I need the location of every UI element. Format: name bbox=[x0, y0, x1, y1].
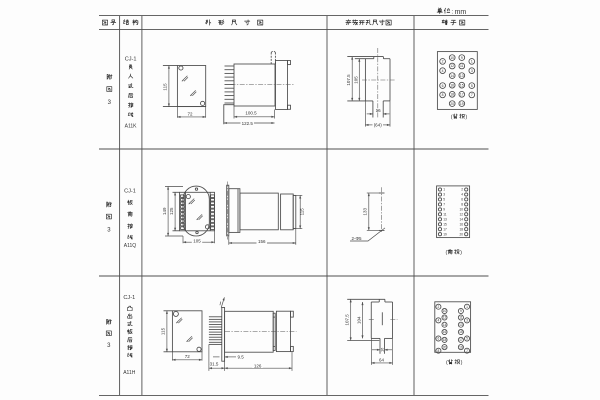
svg-text:2: 2 bbox=[461, 188, 463, 192]
svg-text:18: 18 bbox=[443, 338, 447, 342]
svg-text:15: 15 bbox=[460, 83, 464, 87]
svg-text:133: 133 bbox=[363, 207, 368, 215]
svg-text:11: 11 bbox=[459, 316, 463, 320]
svg-text:20: 20 bbox=[443, 345, 447, 349]
svg-text:12: 12 bbox=[443, 316, 447, 320]
svg-text:3: 3 bbox=[471, 69, 473, 73]
svg-text:100.5: 100.5 bbox=[245, 111, 257, 116]
svg-text:2-Φ5: 2-Φ5 bbox=[351, 236, 362, 241]
svg-text:7: 7 bbox=[471, 93, 473, 97]
svg-text:A11K: A11K bbox=[125, 123, 138, 129]
svg-text:19: 19 bbox=[460, 102, 464, 106]
svg-text:17: 17 bbox=[459, 338, 463, 342]
svg-text:A11Q: A11Q bbox=[124, 243, 137, 249]
svg-text:16: 16 bbox=[379, 347, 384, 352]
svg-text:18: 18 bbox=[450, 93, 454, 97]
svg-text:19: 19 bbox=[459, 345, 463, 349]
svg-text:(: ( bbox=[446, 250, 448, 256]
svg-text:16: 16 bbox=[443, 330, 447, 334]
svg-text:9.5: 9.5 bbox=[237, 355, 244, 360]
svg-text:CJ-1: CJ-1 bbox=[125, 57, 137, 63]
svg-text:115: 115 bbox=[300, 208, 305, 216]
svg-text:1: 1 bbox=[443, 188, 445, 192]
svg-text:4: 4 bbox=[442, 69, 444, 73]
svg-text:10: 10 bbox=[443, 309, 447, 313]
svg-text:9: 9 bbox=[460, 309, 462, 313]
svg-text:6: 6 bbox=[438, 337, 440, 341]
svg-text:18: 18 bbox=[459, 227, 463, 231]
svg-text:4: 4 bbox=[461, 193, 463, 197]
svg-text:72: 72 bbox=[187, 111, 193, 116]
svg-text:105: 105 bbox=[193, 238, 201, 243]
svg-text:1: 1 bbox=[466, 305, 468, 309]
svg-text:125: 125 bbox=[169, 207, 174, 215]
svg-text:5: 5 bbox=[443, 198, 445, 202]
svg-text:(64): (64) bbox=[374, 123, 383, 128]
svg-text:16: 16 bbox=[459, 223, 463, 227]
svg-text:8: 8 bbox=[461, 203, 463, 207]
svg-text:3: 3 bbox=[443, 193, 445, 197]
svg-text:13: 13 bbox=[459, 323, 463, 327]
svg-text:13: 13 bbox=[443, 218, 447, 222]
svg-text:CJ-1: CJ-1 bbox=[124, 189, 136, 195]
svg-text:72: 72 bbox=[185, 354, 191, 359]
svg-text:20: 20 bbox=[450, 102, 454, 106]
svg-text:3: 3 bbox=[466, 319, 468, 323]
svg-text:107.5: 107.5 bbox=[345, 314, 350, 326]
svg-text:6: 6 bbox=[442, 84, 444, 88]
svg-text:11: 11 bbox=[443, 213, 447, 217]
svg-text:5: 5 bbox=[471, 84, 473, 88]
svg-text:7: 7 bbox=[466, 349, 468, 353]
svg-text:(: ( bbox=[446, 360, 448, 366]
svg-text:12: 12 bbox=[450, 64, 454, 68]
svg-text:8: 8 bbox=[442, 93, 444, 97]
svg-text:7: 7 bbox=[443, 203, 445, 207]
svg-text:6: 6 bbox=[461, 198, 463, 202]
svg-text:5: 5 bbox=[466, 337, 468, 341]
svg-text:): ) bbox=[460, 250, 462, 256]
svg-text:2: 2 bbox=[442, 60, 444, 64]
svg-text:115: 115 bbox=[163, 83, 168, 91]
svg-text:17: 17 bbox=[460, 93, 464, 97]
svg-text:10: 10 bbox=[459, 208, 463, 212]
svg-text:126: 126 bbox=[254, 364, 262, 369]
svg-text:11: 11 bbox=[460, 64, 464, 68]
svg-text:A11H: A11H bbox=[123, 370, 136, 376]
svg-text:10: 10 bbox=[450, 56, 454, 60]
svg-text:16: 16 bbox=[450, 83, 454, 87]
svg-text:19: 19 bbox=[443, 232, 447, 236]
svg-text:14: 14 bbox=[443, 323, 447, 327]
svg-text:12: 12 bbox=[459, 213, 463, 217]
svg-text:14: 14 bbox=[450, 74, 454, 78]
svg-text:104: 104 bbox=[356, 316, 361, 324]
svg-text::: : bbox=[451, 9, 453, 16]
svg-text:17: 17 bbox=[443, 227, 447, 231]
svg-text:16: 16 bbox=[376, 108, 382, 113]
svg-text:2: 2 bbox=[438, 305, 440, 309]
svg-text:14: 14 bbox=[459, 218, 463, 222]
svg-text:): ) bbox=[461, 360, 463, 366]
svg-text:): ) bbox=[465, 115, 467, 121]
svg-text:107.5: 107.5 bbox=[346, 74, 351, 86]
svg-text:122.5: 122.5 bbox=[242, 121, 254, 126]
svg-text:115: 115 bbox=[161, 327, 166, 335]
svg-text:9: 9 bbox=[461, 56, 463, 60]
svg-text:20: 20 bbox=[459, 232, 463, 236]
svg-text:31.5: 31.5 bbox=[210, 361, 219, 366]
svg-text:149: 149 bbox=[162, 207, 167, 215]
svg-text:64: 64 bbox=[379, 358, 385, 363]
svg-text:mm: mm bbox=[455, 9, 467, 16]
svg-text:15: 15 bbox=[443, 223, 447, 227]
svg-text:9: 9 bbox=[443, 208, 445, 212]
svg-text:13: 13 bbox=[460, 74, 464, 78]
svg-text:CJ-1: CJ-1 bbox=[123, 295, 135, 301]
svg-text:8: 8 bbox=[438, 349, 440, 353]
svg-text:(: ( bbox=[451, 115, 453, 121]
svg-text:4: 4 bbox=[438, 319, 440, 323]
svg-text:15: 15 bbox=[459, 330, 463, 334]
svg-text:105: 105 bbox=[354, 76, 359, 84]
svg-text:1: 1 bbox=[471, 60, 473, 64]
svg-text:156: 156 bbox=[258, 239, 266, 244]
